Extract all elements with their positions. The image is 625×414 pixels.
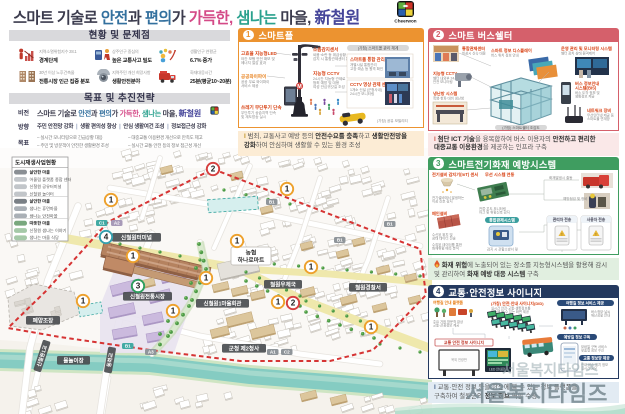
svg-text:교통·관광정보 제공: 교통·관광정보 제공 — [433, 323, 459, 328]
svg-text:고장·파손 등 원격 확인: 고장·파손 등 원격 확인 — [350, 66, 383, 71]
svg-text:아크 및 위험신호 감지: 아크 및 위험신호 감지 — [479, 210, 510, 215]
svg-text:1: 1 — [204, 274, 209, 283]
svg-text:관리자 전송: 관리자 전송 — [553, 217, 572, 222]
svg-text:2: 2 — [211, 165, 216, 174]
svg-text:예방길 정보 구독: 예방길 정보 구독 — [564, 335, 591, 340]
svg-text:및 계도방송 실시: 및 계도방송 실시 — [241, 114, 266, 119]
svg-text:신철원 공유터미널: 신철원 공유터미널 — [30, 183, 62, 190]
svg-text:24시간 모니터링: 24시간 모니터링 — [350, 91, 374, 96]
svg-text:교통 안전 정보 사이니지: 교통 안전 정보 사이니지 — [444, 339, 484, 345]
svg-text:샘나는 마을 식당: 샘나는 마을 식당 — [30, 234, 59, 241]
svg-text:1: 1 — [309, 263, 314, 272]
svg-text:!: ! — [595, 233, 596, 237]
svg-text:폭염·한파 대비 냉난방: 폭염·한파 대비 냉난방 — [433, 95, 464, 100]
svg-text:군청 제2청사: 군청 제2청사 — [229, 344, 260, 352]
svg-text:A1: A1 — [270, 350, 276, 355]
svg-text:1: 1 — [171, 307, 176, 316]
svg-text:(가칭) 스마트쉘터 조감도: (가칭) 스마트쉘터 조감도 — [502, 125, 540, 130]
svg-text:철원우체국: 철원우체국 — [270, 280, 296, 288]
svg-text:2: 2 — [291, 299, 296, 308]
svg-text:쓰레기 무단투기 단속: 쓰레기 무단투기 단속 — [241, 104, 282, 111]
svg-text:감지 시 관할소방서 및: 감지 시 관할소방서 및 — [487, 247, 518, 252]
svg-text:옥외 전광판: 옥외 전광판 — [451, 357, 467, 362]
svg-text:4: 4 — [104, 233, 109, 242]
svg-text:폐양조장: 폐양조장 — [33, 316, 54, 324]
svg-text:1: 1 — [109, 196, 114, 205]
svg-text:M: M — [297, 84, 302, 90]
svg-text:1: 1 — [285, 185, 290, 194]
svg-text:1: 1 — [235, 237, 240, 246]
svg-text:도시재생사업현황: 도시재생사업현황 — [15, 159, 57, 167]
svg-text:화재위험 예측 분석: 화재위험 예측 분석 — [432, 246, 459, 251]
svg-text:1: 1 — [369, 323, 374, 332]
svg-text:메인설비: 메인설비 — [432, 210, 448, 217]
svg-text:하나로마트: 하나로마트 — [238, 256, 265, 264]
svg-text:사용자 전송: 사용자 전송 — [587, 217, 606, 222]
svg-text:B1: B1 — [337, 238, 343, 243]
svg-text:3: 3 — [136, 282, 141, 291]
svg-text:살안한 마을: 살안한 마을 — [30, 169, 51, 176]
svg-text:어울림 플랫폼 종합 센터: 어울림 플랫폼 종합 센터 — [30, 176, 72, 183]
svg-text:에너지 절감 효과: 에너지 절감 효과 — [241, 60, 267, 65]
svg-text:이상 신호 감지: 이상 신호 감지 — [432, 199, 453, 204]
svg-text:농협: 농협 — [246, 249, 257, 257]
svg-text:여성 안심귀갓길 조성: 여성 안심귀갓길 조성 — [313, 84, 345, 89]
svg-text:CCTV 영상 관제 센터: CCTV 영상 관제 센터 — [350, 81, 390, 88]
svg-text:쉘터 장치 상태 원격제어: 쉘터 장치 상태 원격제어 — [561, 50, 595, 55]
svg-text:여행길 안내 플랫폼: 여행길 안내 플랫폼 — [433, 300, 464, 305]
svg-text:고효율 지능형LED: 고효율 지능형LED — [241, 50, 278, 57]
svg-text:재난상황 안내: 재난상황 안내 — [591, 313, 610, 318]
svg-text:물놀이장: 물놀이장 — [63, 356, 84, 364]
svg-text:따뜻한 마을: 따뜻한 마을 — [30, 220, 51, 227]
svg-text:B1: B1 — [387, 222, 393, 227]
svg-text:상태 데이터 전송: 상태 데이터 전송 — [432, 236, 456, 241]
svg-text:서비스 제공: 서비스 제공 — [241, 83, 259, 88]
svg-text:!: ! — [561, 233, 562, 237]
svg-text:Cheerwon: Cheerwon — [394, 19, 416, 24]
svg-text:안전 모니터링: 안전 모니터링 — [433, 79, 453, 84]
svg-text:여행길 정보 서비스 제공: 여행길 정보 서비스 제공 — [566, 301, 605, 306]
svg-text:1: 1 — [131, 252, 136, 261]
svg-text:신철원 샘나는 이야기: 신철원 샘나는 이야기 — [30, 227, 67, 234]
svg-text:(가칭) 공유 모빌리티: (가칭) 공유 모빌리티 — [377, 118, 408, 123]
svg-text:생활정보 제공: 생활정보 제공 — [575, 93, 595, 98]
svg-text:C2: C2 — [284, 350, 290, 355]
svg-text:신철원1마을회관: 신철원1마을회관 — [204, 299, 242, 307]
svg-text:통합관제시스템: 통합관제시스템 — [489, 217, 515, 223]
svg-text:(가칭) 안전·안내 사이니지(DID): (가칭) 안전·안내 사이니지(DID) — [491, 300, 544, 306]
svg-text:지능형 CCTV: 지능형 CCTV — [313, 70, 340, 77]
svg-text:무선 시스템 연동: 무선 시스템 연동 — [485, 171, 514, 178]
svg-text:소음감지센서: 소음감지센서 — [313, 46, 338, 53]
svg-text:C1: C1 — [99, 221, 105, 226]
svg-text:A2: A2 — [114, 221, 120, 226]
svg-text:비상시 신속 대응: 비상시 신속 대응 — [462, 50, 486, 55]
svg-text:1: 1 — [81, 297, 86, 306]
svg-text:살안한 마을: 살안한 마을 — [30, 198, 51, 205]
svg-text:화재발생시 출동: 화재발생시 출동 — [549, 175, 573, 180]
svg-text:(가칭) 스마트폴 관리 체계: (가칭) 스마트폴 관리 체계 — [358, 45, 399, 50]
svg-text:A3: A3 — [148, 350, 154, 355]
svg-text:철원경찰서: 철원경찰서 — [355, 283, 381, 291]
svg-text:신철원전통시장: 신철원전통시장 — [130, 292, 165, 300]
svg-text:공공와이파이: 공공와이파이 — [241, 73, 266, 80]
svg-text:신철원터미널: 신철원터미널 — [121, 233, 152, 241]
svg-text:버스 위치 정보 안내: 버스 위치 정보 안내 — [491, 52, 519, 57]
svg-text:샘나는 휴먼마을: 샘나는 휴먼마을 — [30, 205, 58, 212]
svg-text:스마트물 연계망: 스마트물 연계망 — [587, 116, 610, 121]
svg-text:B1: B1 — [269, 200, 275, 205]
svg-text:B1: B1 — [125, 344, 131, 349]
svg-text:전기설비 감지기(IoT) 센서: 전기설비 감지기(IoT) 센서 — [432, 171, 478, 178]
svg-text:1: 1 — [276, 298, 281, 307]
svg-text:맞춤형 정보 수신: 맞춤형 정보 수신 — [581, 348, 604, 353]
svg-text:스마트폴 통합 관리: 스마트폴 통합 관리 — [350, 56, 385, 63]
